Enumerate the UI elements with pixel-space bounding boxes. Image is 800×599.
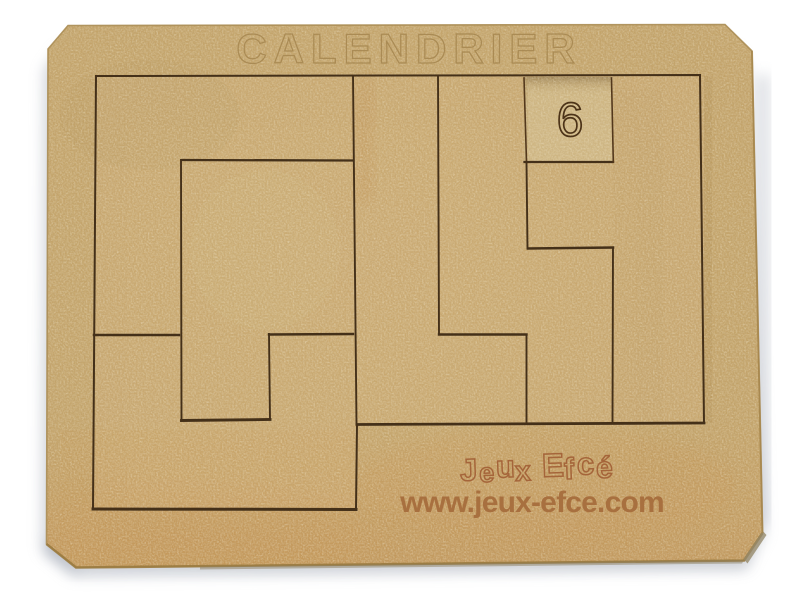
svg-text:é: é: [595, 451, 613, 485]
svg-text:www.jeux-efce.com: www.jeux-efce.com: [399, 486, 664, 519]
svg-text:x: x: [515, 455, 532, 487]
svg-text:6: 6: [557, 94, 584, 147]
svg-text:CALENDRIER: CALENDRIER: [236, 25, 581, 72]
svg-text:u: u: [495, 449, 515, 485]
svg-text:E: E: [541, 446, 564, 484]
svg-text:J: J: [459, 452, 477, 488]
svg-text:e: e: [479, 458, 495, 489]
svg-text:c: c: [576, 446, 594, 482]
